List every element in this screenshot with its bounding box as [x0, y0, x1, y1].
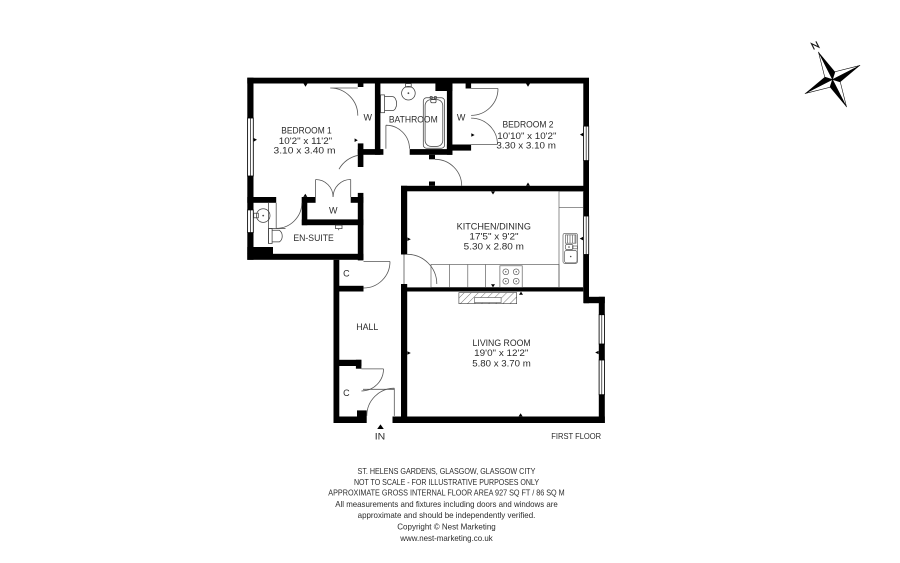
svg-text:10'10" x 10'2": 10'10" x 10'2": [497, 131, 556, 141]
svg-text:BATHROOM: BATHROOM: [389, 115, 438, 125]
svg-text:IN: IN: [375, 432, 386, 442]
svg-text:www.nest-marketing.co.uk: www.nest-marketing.co.uk: [399, 534, 493, 543]
svg-text:BEDROOM 2: BEDROOM 2: [502, 120, 553, 130]
svg-text:APPROXIMATE GROSS INTERNAL FLO: APPROXIMATE GROSS INTERNAL FLOOR AREA 92…: [328, 489, 565, 498]
svg-text:BEDROOM 1: BEDROOM 1: [281, 126, 331, 136]
svg-text:5.30 x 2.80 m: 5.30 x 2.80 m: [464, 241, 524, 251]
svg-text:Copyright © Nest Marketing: Copyright © Nest Marketing: [397, 523, 496, 532]
svg-text:17'5" x 9'2": 17'5" x 9'2": [469, 231, 518, 241]
svg-text:KITCHEN/DINING: KITCHEN/DINING: [457, 221, 531, 231]
svg-text:3.30 x 3.10 m: 3.30 x 3.10 m: [496, 141, 556, 151]
svg-text:HALL: HALL: [356, 322, 378, 332]
svg-text:ST. HELENS GARDENS, GLASGOW, G: ST. HELENS GARDENS, GLASGOW, GLASGOW CIT…: [358, 467, 536, 476]
svg-text:W: W: [363, 113, 372, 123]
svg-text:C: C: [343, 388, 350, 398]
svg-text:5.80 x 3.70 m: 5.80 x 3.70 m: [472, 358, 531, 368]
svg-text:3.10 x 3.40 m: 3.10 x 3.40 m: [274, 145, 336, 155]
svg-text:W: W: [457, 112, 466, 122]
svg-text:EN-SUITE: EN-SUITE: [293, 233, 333, 243]
svg-text:NOT TO SCALE - FOR ILLUSTRATIV: NOT TO SCALE - FOR ILLUSTRATIVE PURPOSES…: [354, 478, 540, 487]
svg-text:FIRST FLOOR: FIRST FLOOR: [551, 431, 601, 441]
svg-text:19'0" x 12'2": 19'0" x 12'2": [474, 348, 528, 358]
svg-text:LIVING ROOM: LIVING ROOM: [473, 338, 531, 348]
svg-text:W: W: [329, 206, 338, 216]
svg-text:All measurements and fixtures: All measurements and fixtures including …: [335, 500, 558, 509]
svg-text:approximate and should be inde: approximate and should be independently …: [358, 511, 536, 520]
svg-text:C: C: [343, 268, 350, 278]
